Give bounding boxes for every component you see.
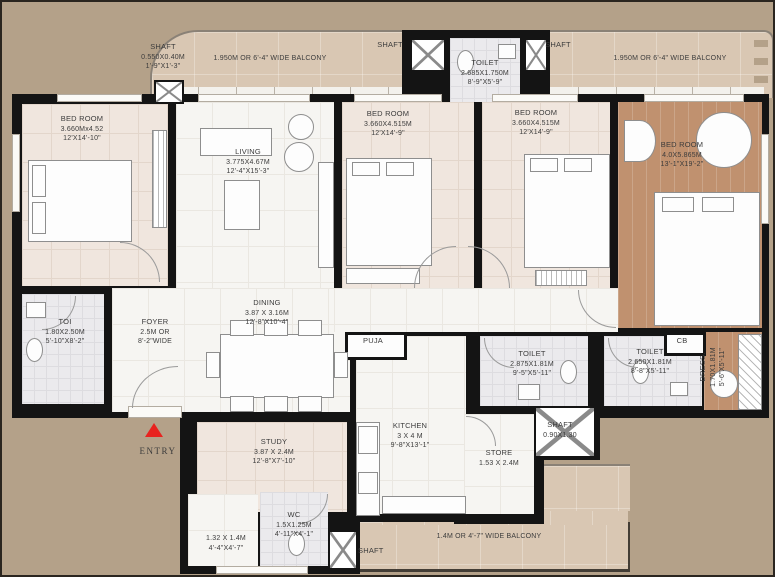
pillow-icon [386, 162, 414, 176]
label-balcony-top-right: 1.950M OR 6'-4" WIDE BALCONY [582, 54, 758, 64]
basin-icon [518, 384, 540, 400]
coffee-table-icon [224, 180, 260, 230]
label-master-bedroom: BED ROOM 4.0X5.865M 13'-1"X19'-2" [632, 140, 732, 170]
label-shaft-t2: SHAFT [538, 40, 578, 51]
label-puja: PUJA [347, 336, 399, 347]
window [216, 566, 308, 574]
label-bedroom-1: BED ROOM 3.660Mx4.52 12'X14'-10" [32, 114, 132, 144]
label-dress: DRESS. 1.70X1.81M 5'-6"X5'-11" [698, 332, 728, 402]
basin-icon [670, 382, 688, 396]
chair-icon [230, 396, 254, 412]
wardrobe-icon [738, 334, 762, 410]
pillow-icon [32, 165, 46, 197]
pillow-icon [662, 197, 694, 212]
room-utility [188, 494, 258, 566]
pillow-icon [32, 202, 46, 234]
label-wc: WC 1.5X1.25M 4'-11"X4'-1" [254, 510, 334, 540]
window [492, 94, 578, 102]
chair-icon [206, 352, 220, 378]
floor-plan: SHAFT 0.550X0.40M 1'-9"X1'-3" 1.950M OR … [0, 0, 775, 577]
label-toilet-right: TOILET 2.650X1.81M 8'-8"X5'-11" [602, 347, 698, 377]
label-dining: DINING 3.87 X 3.16M 12'-8"X10'-4" [217, 298, 317, 328]
chair-icon [264, 396, 288, 412]
pillow-icon [352, 162, 380, 176]
chair-icon [298, 396, 322, 412]
label-bedroom-3: BED ROOM 3.660X4.515M 12'X14'-9" [486, 108, 586, 138]
dresser-icon [346, 268, 420, 284]
shaft-x-icon [154, 80, 184, 104]
label-study: STUDY 3.87 X 2.4M 12'-8"X7'-10" [224, 437, 324, 467]
pillow-icon [564, 158, 592, 172]
entry-arrow-icon [145, 423, 163, 437]
label-store: STORE 1.53 X 2.4M [459, 448, 539, 468]
label-toi: TOI 1.80X2.50M 5'-10"X8'-2" [26, 317, 104, 347]
window [644, 94, 744, 102]
label-shaft-mid: SHAFT 0.90X1.30 [520, 420, 600, 440]
label-balcony-top-left: 1.950M OR 6'-4" WIDE BALCONY [182, 54, 358, 64]
window [354, 94, 442, 102]
pillow-icon [530, 158, 558, 172]
balcony-bottom-right [532, 464, 630, 511]
kitchen-appliance-icon [382, 496, 466, 514]
label-toilet-mid: TOILET 2.875X1.81M 9'-5"X5'-11" [484, 349, 580, 379]
label-foyer: FOYER 2.5M OR 8'-2"WIDE [116, 317, 194, 347]
balcony-crenellation [754, 40, 768, 94]
wardrobe-icon [535, 270, 587, 286]
window [198, 94, 310, 102]
window [57, 94, 142, 102]
window [761, 134, 769, 224]
chair-icon [334, 352, 348, 378]
wardrobe-icon [152, 130, 167, 228]
basin-icon [498, 44, 516, 59]
label-cb: CB [664, 336, 700, 347]
pillow-icon [702, 197, 734, 212]
label-bedroom-2: BED ROOM 3.660X4.515M 12'X14'-9" [338, 109, 438, 139]
tv-unit-icon [318, 162, 334, 268]
sink-icon [358, 472, 378, 494]
label-entry: ENTRY [130, 446, 186, 456]
dining-table-icon [220, 334, 334, 398]
shaft-x-icon [410, 38, 446, 72]
label-toilet-top: TOILET 2.685X1.750M 8'-9"X5'-9" [444, 58, 526, 88]
side-table-icon [288, 114, 314, 140]
label-living: LIVING 3.775X4.67M 12'-4"X15'-3" [198, 147, 298, 177]
window [12, 134, 20, 212]
label-shaft-bottom: SHAFT [358, 546, 408, 557]
label-balcony-bottom: 1.4M OR 4'-7" WIDE BALCONY [394, 532, 584, 542]
label-shaft-t1: SHAFT [370, 40, 410, 51]
room-corridor [334, 288, 618, 332]
label-kitchen: KITCHEN 3 X 4 M 9'-8"X13'-1" [360, 421, 460, 451]
bed-icon [654, 192, 760, 326]
